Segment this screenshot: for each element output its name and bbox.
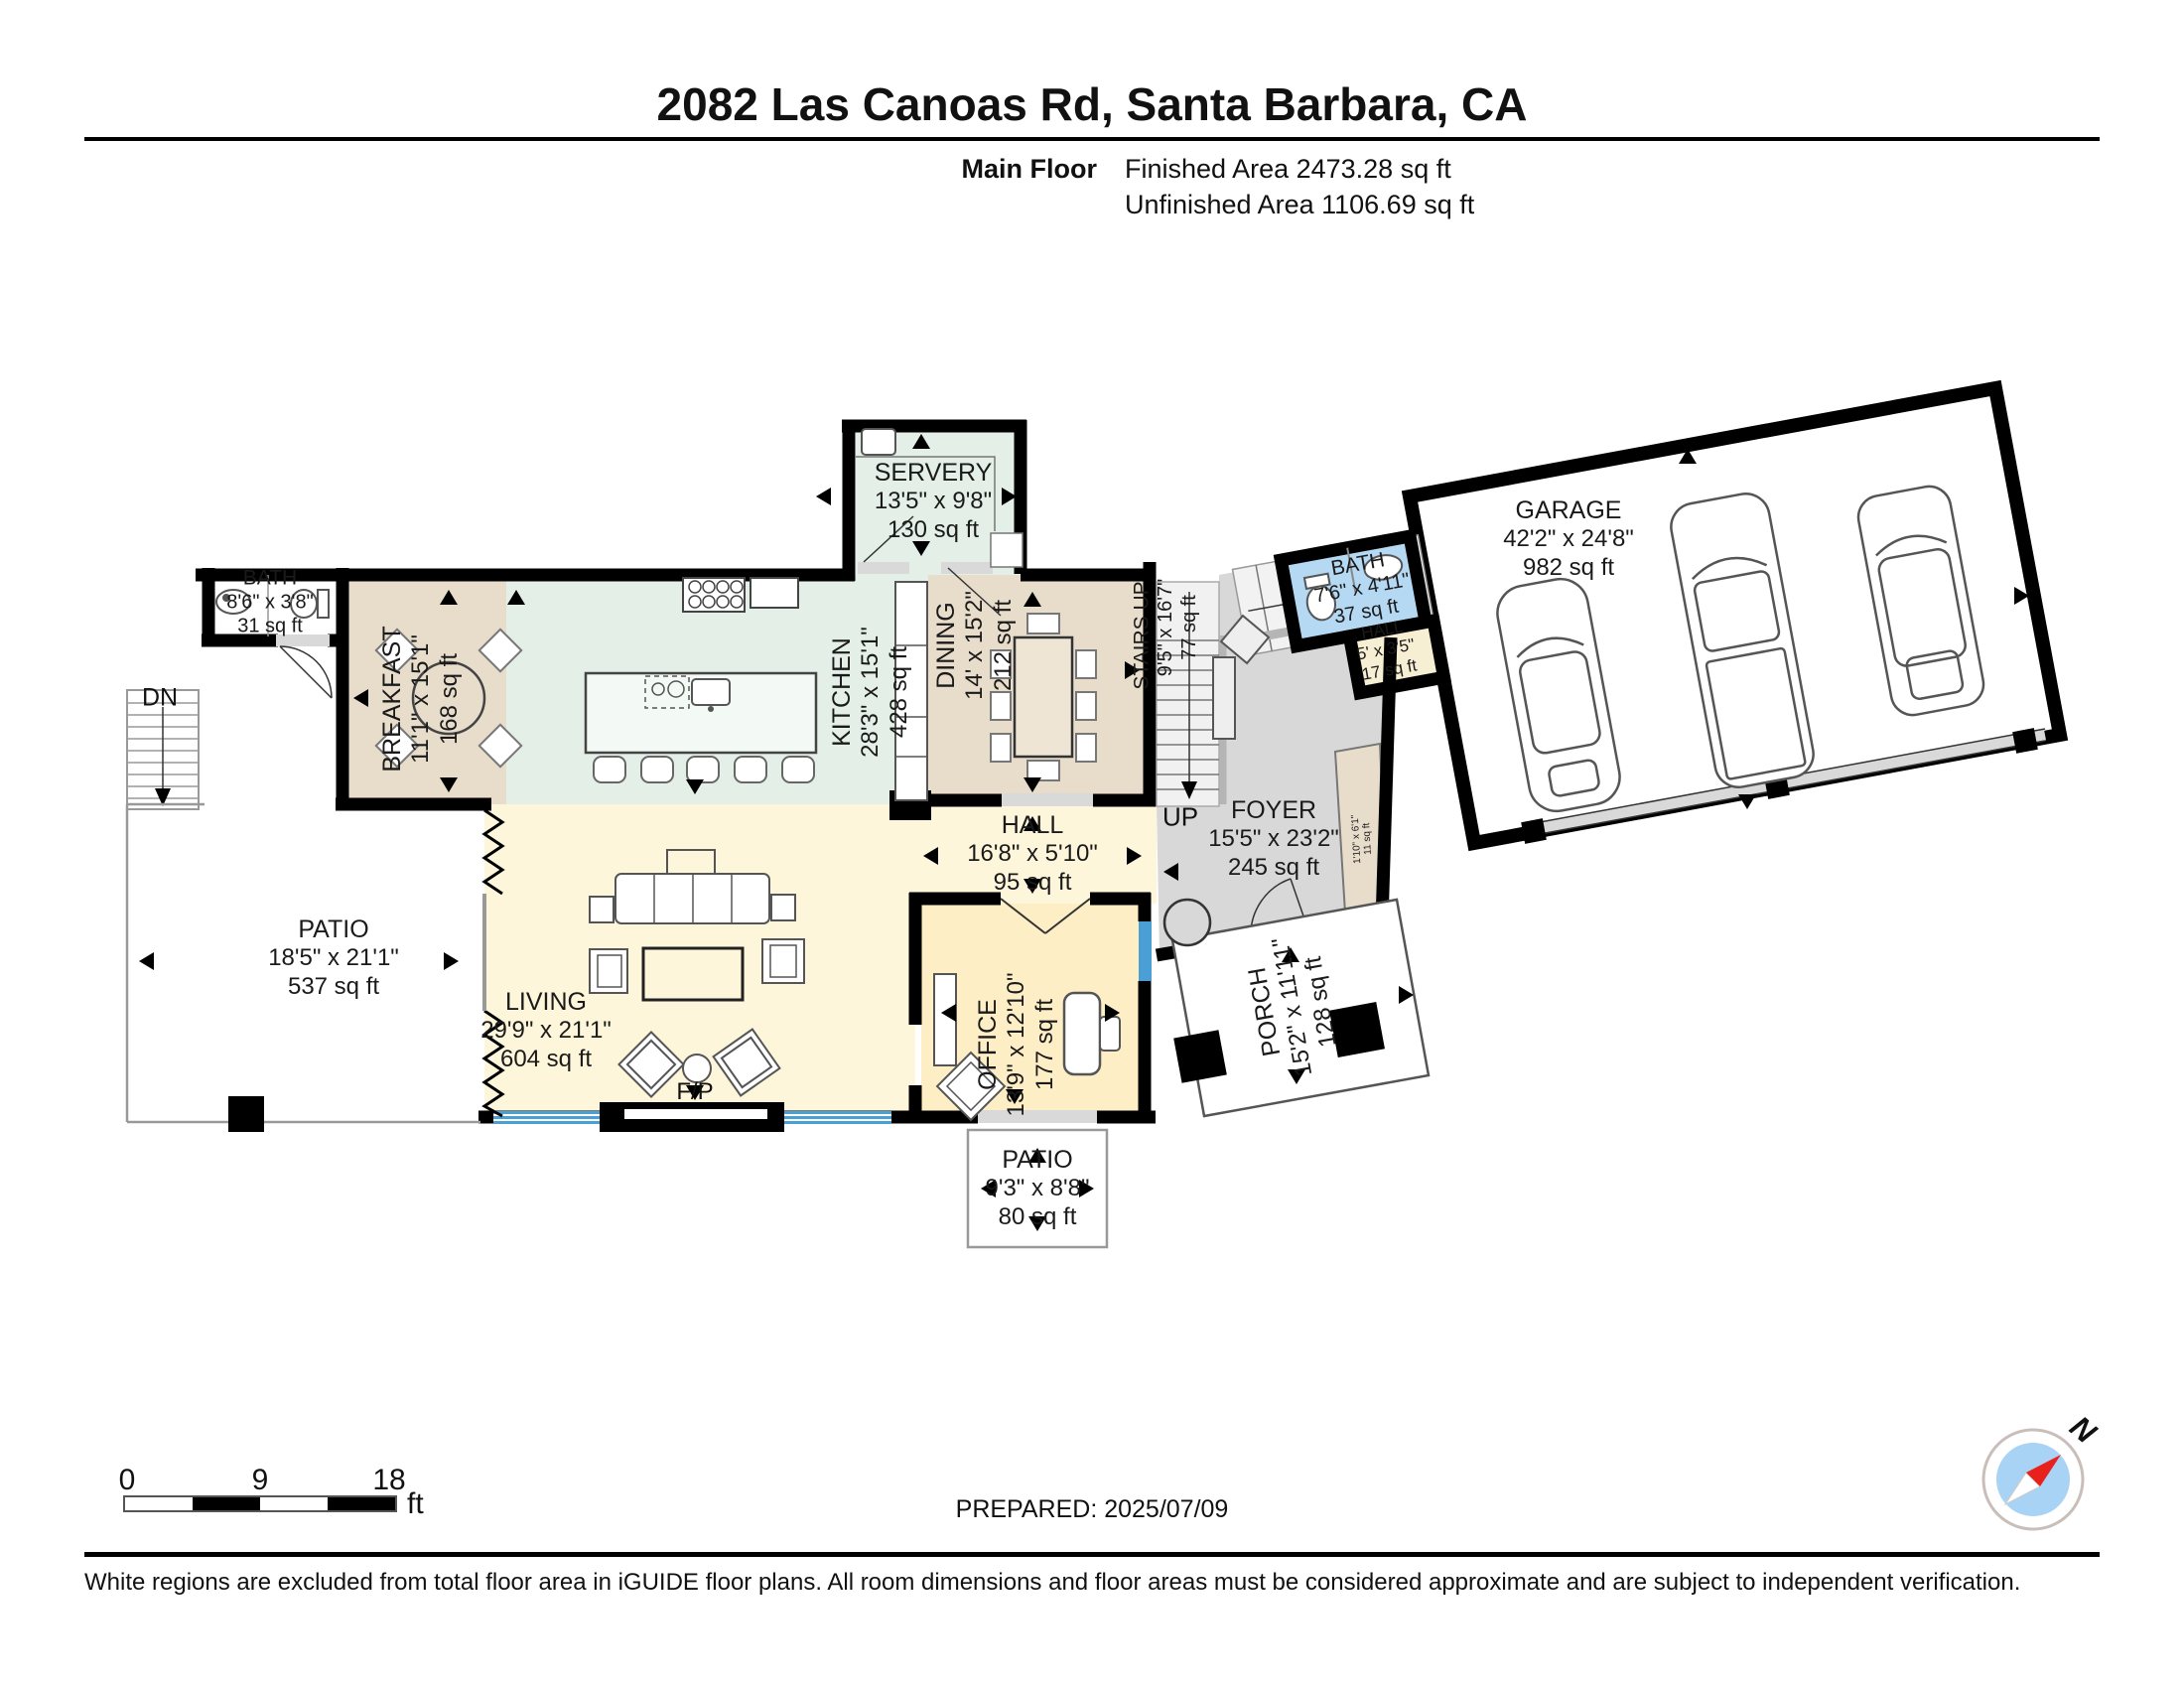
coffee-table [643, 948, 743, 1000]
room-label-foyer: FOYER 15'5" x 23'2" 245 sq ft [1208, 795, 1339, 883]
scale-mid: 9 [252, 1464, 269, 1497]
footer-rule [84, 1552, 2100, 1557]
room-label-hall: HALL 16'8" x 5'10" 95 sq ft [967, 810, 1098, 898]
servery-sink [862, 429, 895, 455]
stairs-up-label: UP [1162, 802, 1198, 833]
kitchen-appliance [751, 578, 798, 608]
disclaimer-text: White regions are excluded from total fl… [84, 1569, 2100, 1597]
kitchen-sink [692, 679, 730, 705]
office-chair [1100, 1017, 1120, 1051]
room-label-kitchen: KITCHEN 28'3" x 15'1" 428 sq ft [827, 627, 914, 758]
room-label-breakfast: BREAKFAST 11'1" x 15'1" 168 sq ft [377, 626, 465, 772]
foyer-bench [1213, 657, 1235, 739]
door-servery-kitchen [858, 562, 909, 574]
fireplace-insert [623, 1108, 768, 1120]
scale-start: 0 [119, 1464, 136, 1497]
servery-cabinet [991, 533, 1023, 567]
door-leaf [280, 646, 332, 698]
room-label-servery: SERVERY 13'5" x 9'8" 130 sq ft [875, 458, 993, 545]
room-label-living: LIVING 29'9" x 21'1" 604 sq ft [480, 987, 612, 1074]
foyer-table [1164, 900, 1210, 945]
office-desk [1064, 993, 1100, 1074]
room-label-bath-main: BATH 8'6" x 3'8" 31 sq ft [226, 565, 313, 637]
window [784, 1111, 891, 1124]
window [493, 1111, 600, 1124]
window [1139, 921, 1152, 981]
room-label-stairs-dims: 9'5" x 16'7" 77 sq ft [1154, 579, 1201, 677]
room-label-patio-rear: PATIO 9'3" x 8'8" 80 sq ft [986, 1145, 1090, 1232]
room-label-dining: DINING 14' x 15'2" 212 sq ft [931, 591, 1019, 700]
room-label-patio-left: PATIO 18'5" x 21'1" 537 sq ft [268, 914, 399, 1002]
side-table [590, 897, 614, 922]
dining-table [1015, 637, 1072, 757]
room-label-hall-upper: HALL 5' x 3'5" 17 sq ft [1352, 616, 1421, 685]
porch-pillar [1173, 1030, 1227, 1083]
fireplace-label: F/P [676, 1078, 713, 1106]
room-label-garage: GARAGE 42'2" x 24'8" 982 sq ft [1503, 495, 1634, 583]
kitchen-faucet [708, 706, 714, 712]
prepared-date: PREPARED: 2025/07/09 [0, 1495, 2184, 1524]
scale-end: 18 [372, 1464, 405, 1497]
side-table [771, 895, 795, 920]
floorplan-page: 2082 Las Canoas Rd, Santa Barbara, CA Ma… [0, 0, 2184, 1688]
room-label-stairs-name: STAIRS UP [1129, 581, 1154, 689]
stairs-down-label: DN [142, 684, 178, 713]
door-dining [1002, 793, 1093, 806]
patio-post [228, 1096, 264, 1132]
room-label-office: OFFICE 13'9" x 12'10" 177 sq ft [973, 973, 1060, 1117]
room-label-hall-tiny: 1'10" x 6'1" 11 sq ft [1350, 814, 1375, 864]
